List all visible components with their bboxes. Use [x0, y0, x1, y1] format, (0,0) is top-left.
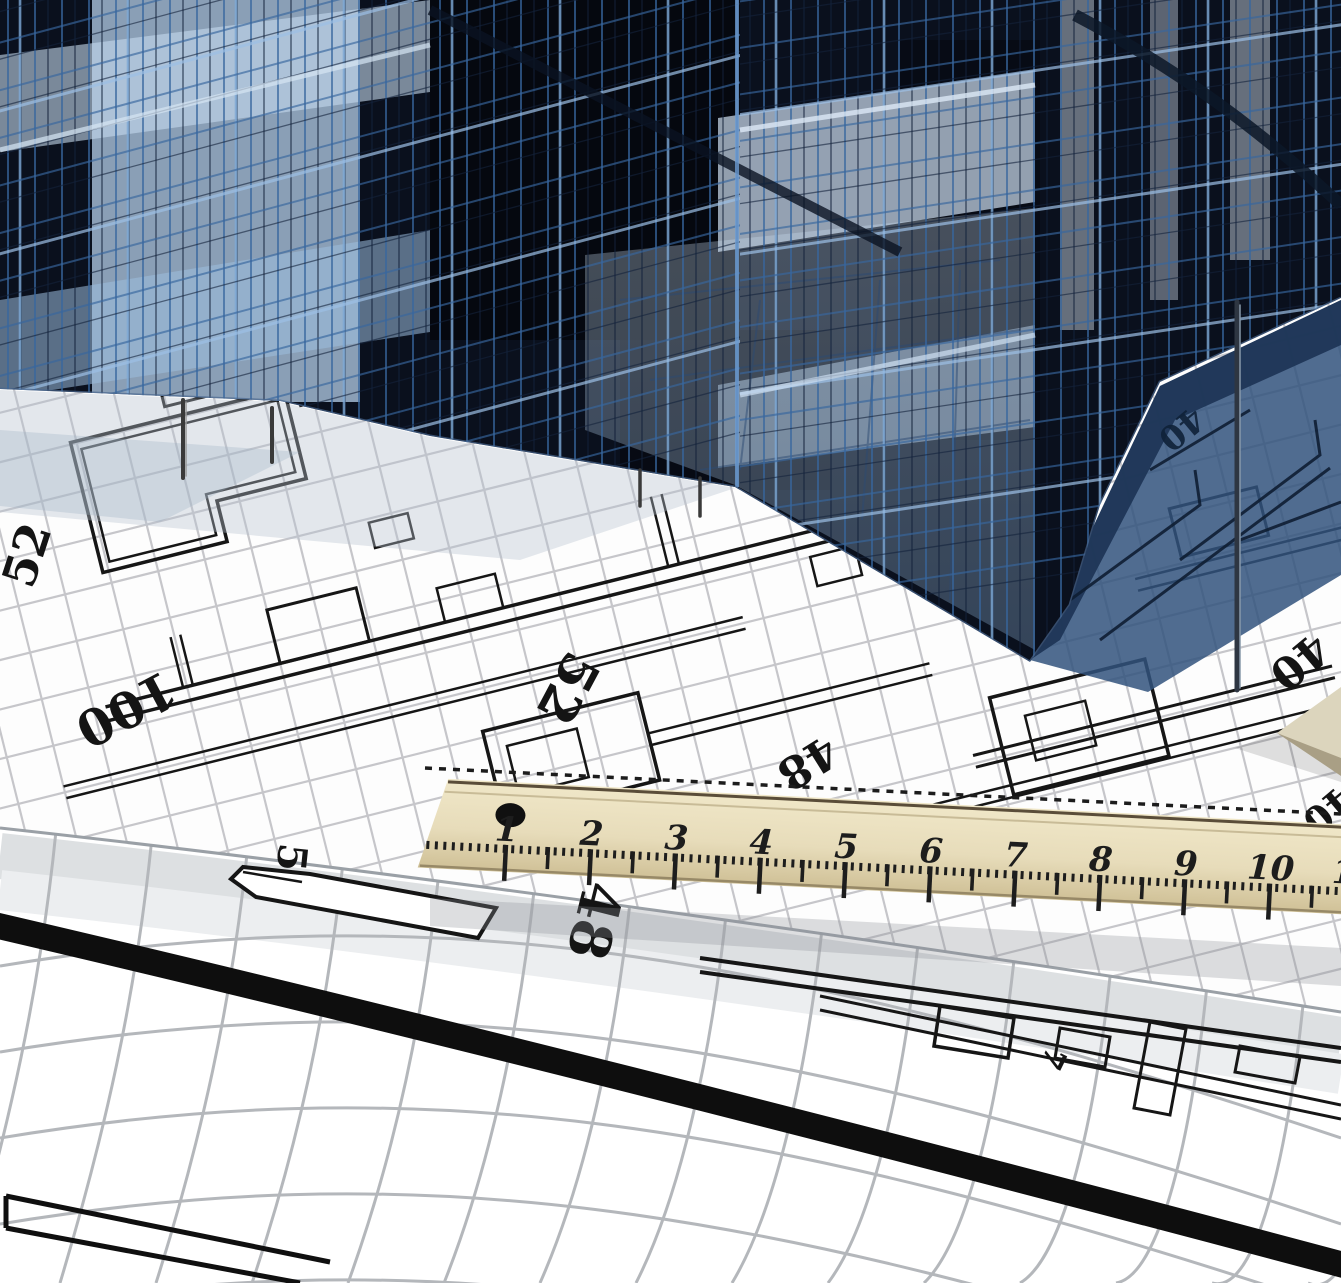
- ruler-tenth-tick: [961, 868, 964, 876]
- ruler-tenth-tick: [486, 844, 489, 852]
- ruler-tenth-tick: [986, 869, 989, 877]
- ruler-tenth-tick: [783, 859, 786, 867]
- ruler-tenth-tick: [1071, 874, 1074, 882]
- ruler-number: 8: [1087, 839, 1114, 880]
- ruler-tenth-tick: [528, 846, 531, 854]
- ruler-tenth-tick: [1241, 882, 1244, 890]
- ruler-tenth-tick: [621, 851, 624, 859]
- ruler-number: 2: [578, 814, 605, 855]
- ruler-tenth-tick: [647, 852, 650, 860]
- blueprint-number: 5: [267, 841, 317, 874]
- ruler-number: 7: [1003, 835, 1029, 876]
- ruler-tenth-tick: [1148, 877, 1151, 885]
- ruler-tenth-tick: [1216, 881, 1219, 889]
- ruler-tenth-tick: [460, 843, 463, 851]
- ruler-tenth-tick: [562, 848, 565, 856]
- ruler-number: 10: [1246, 847, 1296, 889]
- ruler-tenth-tick: [876, 864, 879, 872]
- ruler-tenth-tick: [698, 855, 701, 863]
- ruler-tenth-tick: [443, 842, 446, 850]
- ruler-number: 4: [749, 822, 775, 863]
- ruler-tenth-tick: [604, 850, 607, 858]
- ruler-tenth-tick: [536, 846, 539, 854]
- scene-canvas: 404252: [0, 0, 1341, 1283]
- ruler-tenth-tick: [689, 854, 692, 862]
- ruler-tenth-tick: [477, 843, 480, 851]
- ruler-tenth-tick: [910, 865, 913, 873]
- ruler-tenth-tick: [706, 855, 709, 863]
- ruler-tenth-tick: [1301, 885, 1304, 893]
- ruler-tenth-tick: [1029, 871, 1032, 879]
- ruler-tenth-tick: [1063, 873, 1066, 881]
- ruler-tenth-tick: [435, 841, 438, 849]
- ruler-tenth-tick: [469, 843, 472, 851]
- ruler-tenth-tick: [1080, 874, 1083, 882]
- ruler-tenth-tick: [1156, 878, 1159, 886]
- ruler-tenth-tick: [638, 852, 641, 860]
- ruler-number: 6: [918, 831, 944, 872]
- ruler-tenth-tick: [1317, 886, 1320, 894]
- ruler-tenth-tick: [1046, 872, 1049, 880]
- ruler-tenth-tick: [774, 859, 777, 867]
- ruler-tenth-tick: [1199, 880, 1202, 888]
- ruler-tenth-tick: [1131, 877, 1134, 885]
- ruler-tenth-tick: [1207, 880, 1210, 888]
- ruler-number: 1: [494, 809, 520, 850]
- ruler-tenth-tick: [1326, 886, 1329, 894]
- ruler-tenth-tick: [452, 842, 455, 850]
- ruler-tenth-tick: [655, 852, 658, 860]
- ruler-tenth-tick: [520, 846, 523, 854]
- blueprint-scene: 404252: [0, 0, 1341, 1283]
- ruler-tenth-tick: [740, 857, 743, 865]
- ruler-tenth-tick: [902, 865, 905, 873]
- ruler-tenth-tick: [1037, 872, 1040, 880]
- ruler-tenth-tick: [1165, 878, 1168, 886]
- ruler-tenth-tick: [1122, 876, 1125, 884]
- light-slat-2: [1150, 0, 1178, 300]
- ruler-number: 11: [1331, 852, 1341, 894]
- ruler-tenth-tick: [995, 870, 998, 878]
- ruler-number: 9: [1173, 844, 1199, 885]
- ruler-tenth-tick: [1114, 876, 1117, 884]
- ruler-tenth-tick: [817, 861, 820, 869]
- ruler-tenth-tick: [613, 850, 616, 858]
- ruler-tenth-tick: [570, 848, 573, 856]
- ruler-tenth-tick: [868, 863, 871, 871]
- ruler-tenth-tick: [893, 865, 896, 873]
- ruler-tenth-tick: [825, 861, 828, 869]
- ruler-tenth-tick: [1233, 882, 1236, 890]
- ruler-tenth-tick: [952, 868, 955, 876]
- ruler-number: 5: [833, 827, 859, 868]
- ruler-tenth-tick: [723, 856, 726, 864]
- ruler-tenth-tick: [944, 867, 947, 875]
- ruler-number: 3: [664, 818, 690, 859]
- ruler-tenth-tick: [732, 856, 735, 864]
- ruler-tenth-tick: [859, 863, 862, 871]
- ruler-tenth-tick: [978, 869, 981, 877]
- ruler-tenth-tick: [553, 847, 556, 855]
- ruler-tenth-tick: [808, 860, 811, 868]
- ruler-tenth-tick: [426, 841, 429, 849]
- ruler-tenth-tick: [791, 859, 794, 867]
